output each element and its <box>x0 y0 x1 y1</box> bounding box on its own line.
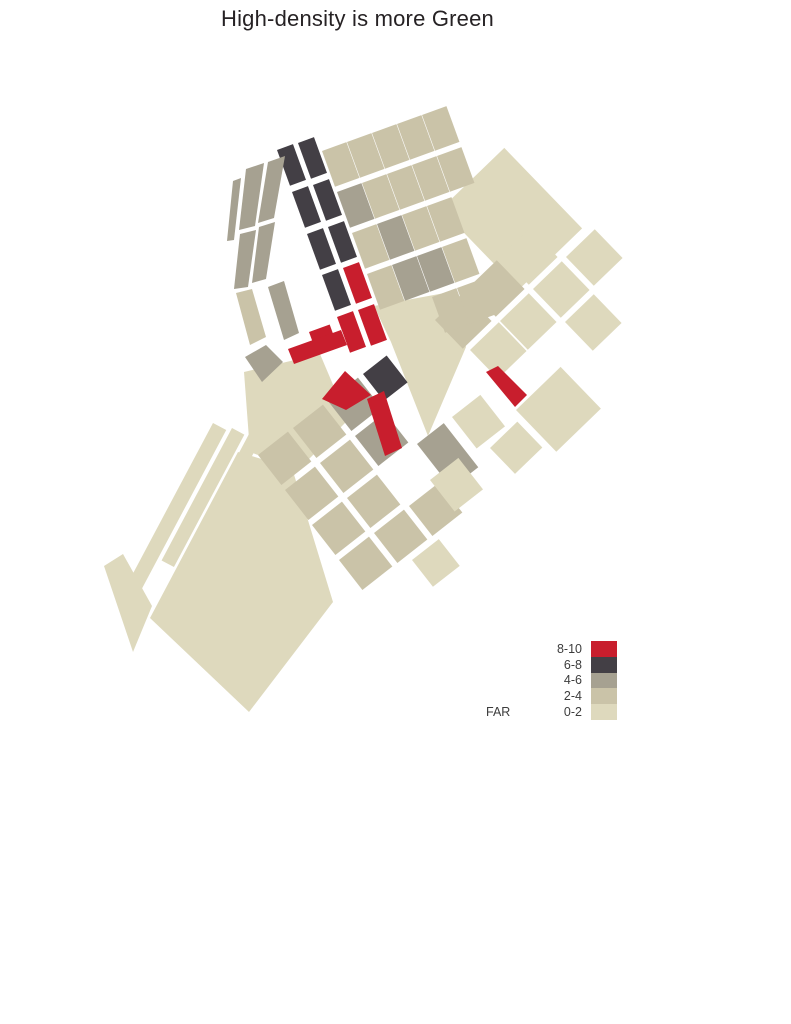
map-block-far-8-10 <box>486 366 527 407</box>
page: High-density is more Green 8-10 6-8 4-6 … <box>0 0 791 1024</box>
legend-row: 4-6 <box>486 673 617 689</box>
legend-row: 2-4 <box>486 688 617 704</box>
legend-range-label: 0-2 <box>532 705 591 719</box>
far-map <box>0 0 791 1024</box>
map-block-far-0-2 <box>452 395 505 449</box>
legend-far-label: FAR <box>486 705 532 719</box>
map-blocks-layer <box>104 106 623 712</box>
legend-row: FAR 0-2 <box>486 704 617 720</box>
legend-swatch <box>591 641 617 657</box>
legend-range-label: 6-8 <box>532 658 591 672</box>
map-block-far-0-2 <box>412 539 460 587</box>
map-block-far-4-6 <box>268 281 299 340</box>
map-block-far-4-6 <box>227 178 241 241</box>
legend-swatch <box>591 704 617 720</box>
legend-range-label: 4-6 <box>532 673 591 687</box>
legend-row: 8-10 <box>486 641 617 657</box>
far-legend: 8-10 6-8 4-6 2-4 FAR 0-2 <box>486 641 617 720</box>
map-block-far-2-4 <box>236 289 266 345</box>
legend-range-label: 8-10 <box>532 642 591 656</box>
legend-row: 6-8 <box>486 657 617 673</box>
legend-swatch <box>591 657 617 673</box>
legend-swatch <box>591 673 617 689</box>
legend-swatch <box>591 688 617 704</box>
legend-range-label: 2-4 <box>532 689 591 703</box>
